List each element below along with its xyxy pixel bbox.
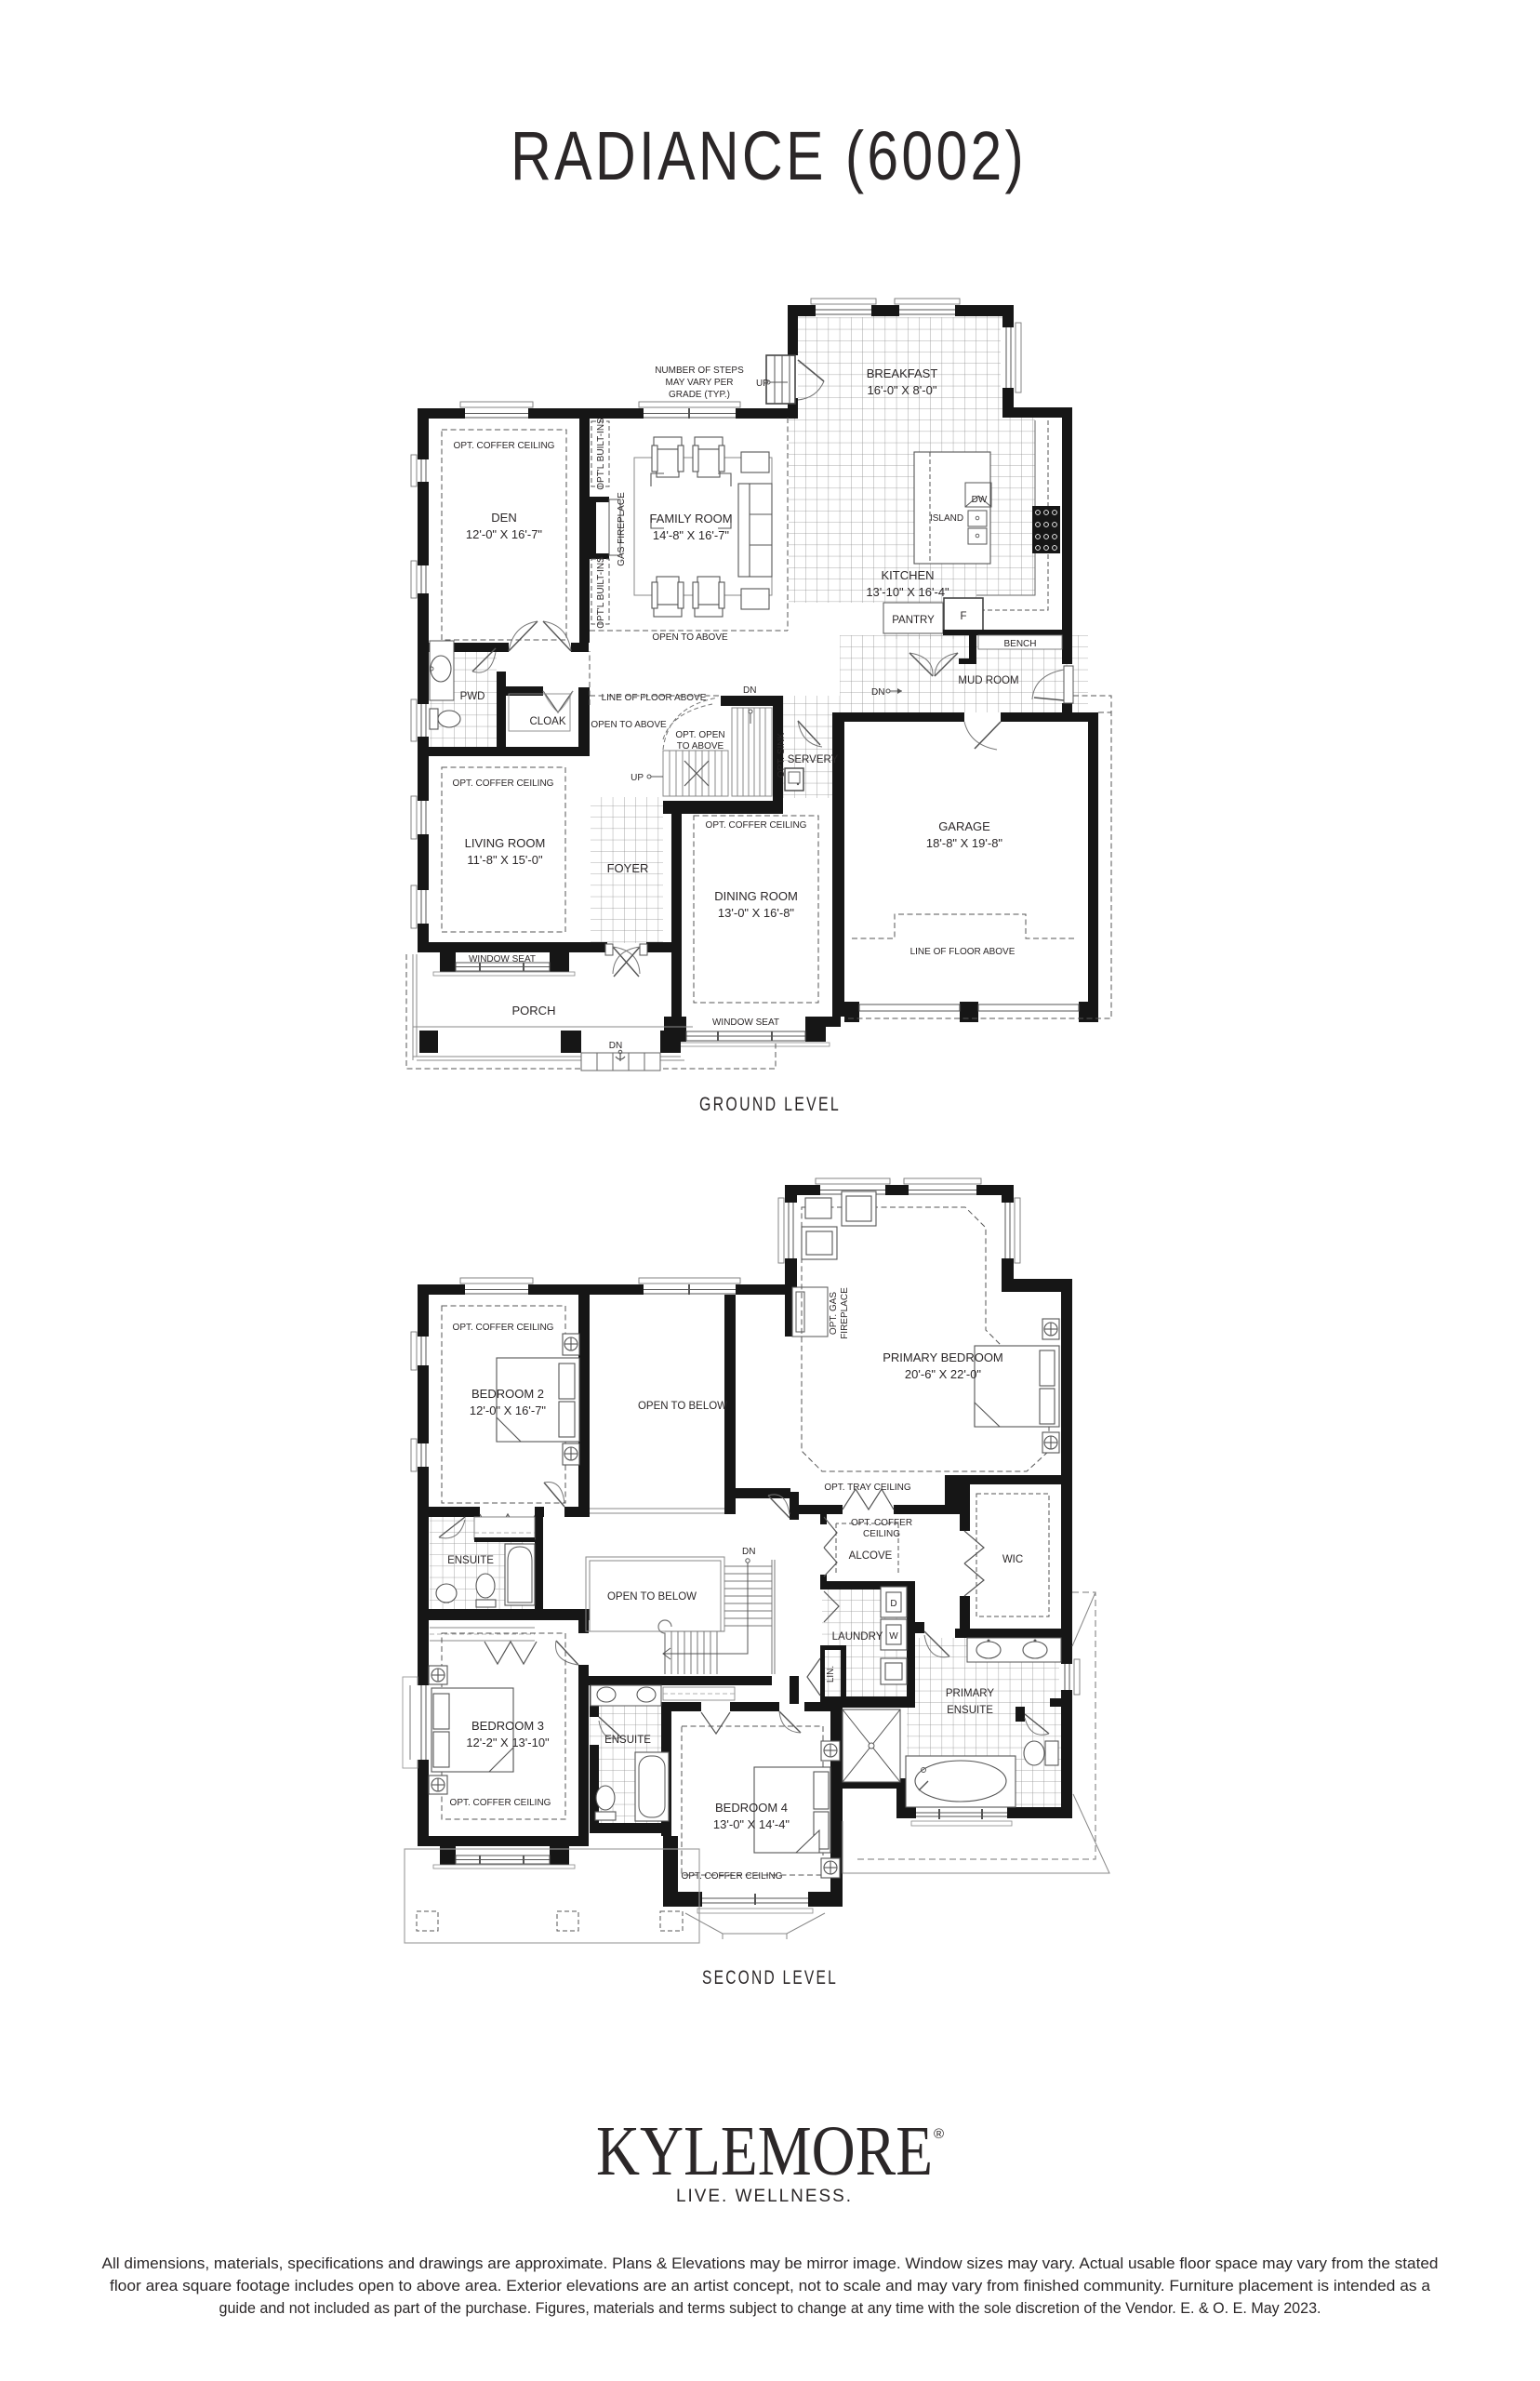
svg-text:16'-0" X 8'-0": 16'-0" X 8'-0"	[868, 383, 937, 397]
svg-text:OPEN TO BELOW: OPEN TO BELOW	[607, 1591, 697, 1603]
svg-text:FIREPLACE: FIREPLACE	[840, 1287, 850, 1339]
svg-text:BEDROOM 3: BEDROOM 3	[471, 1719, 544, 1733]
svg-text:BEDROOM 4: BEDROOM 4	[715, 1801, 788, 1815]
svg-text:20'-6" X 22'-0": 20'-6" X 22'-0"	[905, 1367, 982, 1381]
svg-text:CEILING: CEILING	[863, 1529, 900, 1539]
svg-text:OPT. COFFER CEILING: OPT. COFFER CEILING	[453, 778, 554, 789]
svg-text:LINE OF FLOOR ABOVE: LINE OF FLOOR ABOVE	[602, 693, 707, 703]
svg-text:KITCHEN: KITCHEN	[881, 568, 934, 582]
svg-text:guide and not included as part: guide and not included as part of the pu…	[219, 2299, 1321, 2317]
svg-text:F: F	[960, 611, 966, 622]
svg-text:GAS FIREPLACE: GAS FIREPLACE	[617, 492, 627, 566]
svg-text:DINING ROOM: DINING ROOM	[714, 889, 798, 903]
svg-text:WINDOW SEAT: WINDOW SEAT	[712, 1018, 779, 1028]
svg-text:LIVING ROOM: LIVING ROOM	[465, 836, 546, 850]
svg-text:WIC: WIC	[1002, 1554, 1023, 1565]
svg-text:12'-0" X 16'-7": 12'-0" X 16'-7"	[466, 527, 543, 541]
svg-text:ENSUITE: ENSUITE	[604, 1735, 651, 1746]
svg-text:DW: DW	[972, 495, 988, 505]
svg-text:ENSUITE: ENSUITE	[447, 1555, 494, 1566]
svg-text:FAMILY ROOM: FAMILY ROOM	[649, 512, 732, 525]
svg-text:OPT. COFFER CEILING: OPT. COFFER CEILING	[453, 1323, 554, 1333]
svg-text:MAY VARY PER: MAY VARY PER	[666, 378, 734, 388]
svg-text:12'-2" X 13'-10": 12'-2" X 13'-10"	[466, 1736, 550, 1749]
svg-text:floor area square footage incl: floor area square footage includes open …	[110, 2277, 1431, 2295]
svg-text:11'-8" X 15'-0": 11'-8" X 15'-0"	[467, 853, 543, 867]
svg-text:W: W	[889, 1631, 898, 1642]
svg-text:13'-0" X 16'-8": 13'-0" X 16'-8"	[718, 906, 795, 920]
svg-text:OPEN TO BELOW: OPEN TO BELOW	[638, 1401, 727, 1412]
svg-text:OPT. COFFER CEILING: OPT. COFFER CEILING	[706, 820, 807, 831]
svg-text:RADIANCE (6002): RADIANCE (6002)	[511, 117, 1027, 194]
svg-text:13'-0" X 14'-4": 13'-0" X 14'-4"	[713, 1817, 790, 1831]
svg-text:DEN: DEN	[491, 511, 516, 525]
svg-text:OPT. COFFER CEILING: OPT. COFFER CEILING	[450, 1798, 551, 1808]
svg-text:KYLEMORE: KYLEMORE	[596, 2112, 933, 2190]
svg-text:BENCH: BENCH	[1003, 639, 1036, 649]
svg-text:DN: DN	[742, 1547, 755, 1557]
svg-text:OPEN TO ABOVE: OPEN TO ABOVE	[652, 632, 728, 643]
svg-text:UP: UP	[631, 773, 644, 783]
svg-text:DN: DN	[871, 687, 884, 698]
svg-text:ISLAND: ISLAND	[930, 513, 963, 524]
svg-text:LINE OF FLOOR ABOVE: LINE OF FLOOR ABOVE	[910, 947, 1016, 957]
svg-text:LAUNDRY: LAUNDRY	[832, 1631, 883, 1643]
svg-text:GRADE (TYP.): GRADE (TYP.)	[669, 390, 730, 400]
svg-text:OPT'L BUILT-INS: OPT'L BUILT-INS	[596, 556, 606, 629]
svg-text:CLOAK: CLOAK	[530, 716, 566, 727]
svg-text:BEDROOM 2: BEDROOM 2	[471, 1387, 544, 1401]
svg-text:WINDOW SEAT: WINDOW SEAT	[469, 954, 536, 964]
svg-text:18'-8" X 19'-8": 18'-8" X 19'-8"	[926, 836, 1003, 850]
svg-text:SERVERY: SERVERY	[788, 754, 839, 765]
svg-text:OPT'L BUILT-INS: OPT'L BUILT-INS	[596, 418, 606, 490]
svg-text:NUMBER OF STEPS: NUMBER OF STEPS	[655, 366, 744, 376]
svg-text:TO ABOVE: TO ABOVE	[677, 741, 724, 752]
svg-text:GARAGE: GARAGE	[938, 819, 990, 833]
svg-text:All dimensions, materials, spe: All dimensions, materials, specification…	[102, 2255, 1439, 2272]
svg-text:DN: DN	[609, 1041, 622, 1051]
svg-text:OPT. COFFER CEILING: OPT. COFFER CEILING	[682, 1871, 783, 1882]
svg-text:LIN.: LIN.	[826, 1666, 836, 1683]
svg-text:LIVE. WELLNESS.: LIVE. WELLNESS.	[676, 2187, 853, 2206]
svg-text:D: D	[890, 1599, 896, 1609]
svg-text:PRIMARY BEDROOM: PRIMARY BEDROOM	[883, 1350, 1003, 1364]
svg-text:SECOND LEVEL: SECOND LEVEL	[702, 1967, 838, 1989]
svg-text:®: ®	[934, 2126, 944, 2142]
svg-text:OPT. COFFER CEILING: OPT. COFFER CEILING	[454, 441, 555, 451]
svg-text:PRIMARY: PRIMARY	[946, 1688, 995, 1699]
svg-text:MUD ROOM: MUD ROOM	[958, 675, 1018, 686]
svg-text:OPT. OPEN: OPT. OPEN	[675, 730, 724, 740]
svg-text:ALCOVE: ALCOVE	[849, 1550, 893, 1562]
svg-text:14'-8" X 16'-7": 14'-8" X 16'-7"	[653, 528, 730, 542]
svg-text:ENSUITE: ENSUITE	[947, 1705, 993, 1716]
svg-text:GROUND LEVEL: GROUND LEVEL	[699, 1094, 841, 1115]
svg-text:BREAKFAST: BREAKFAST	[867, 366, 938, 380]
svg-text:13'-10" X 16'-4": 13'-10" X 16'-4"	[866, 585, 949, 599]
svg-text:FOYER: FOYER	[607, 861, 649, 875]
svg-text:12'-0" X 16'-7": 12'-0" X 16'-7"	[470, 1403, 547, 1417]
svg-text:OPT. TRAY CEILING: OPT. TRAY CEILING	[824, 1483, 911, 1493]
svg-text:PANTRY: PANTRY	[892, 615, 935, 626]
svg-text:PORCH: PORCH	[512, 1004, 556, 1018]
svg-text:DN: DN	[743, 685, 756, 696]
svg-text:OPT. GAS: OPT. GAS	[829, 1292, 839, 1335]
svg-text:PWD: PWD	[460, 691, 485, 702]
svg-text:OPEN TO ABOVE: OPEN TO ABOVE	[591, 720, 667, 730]
